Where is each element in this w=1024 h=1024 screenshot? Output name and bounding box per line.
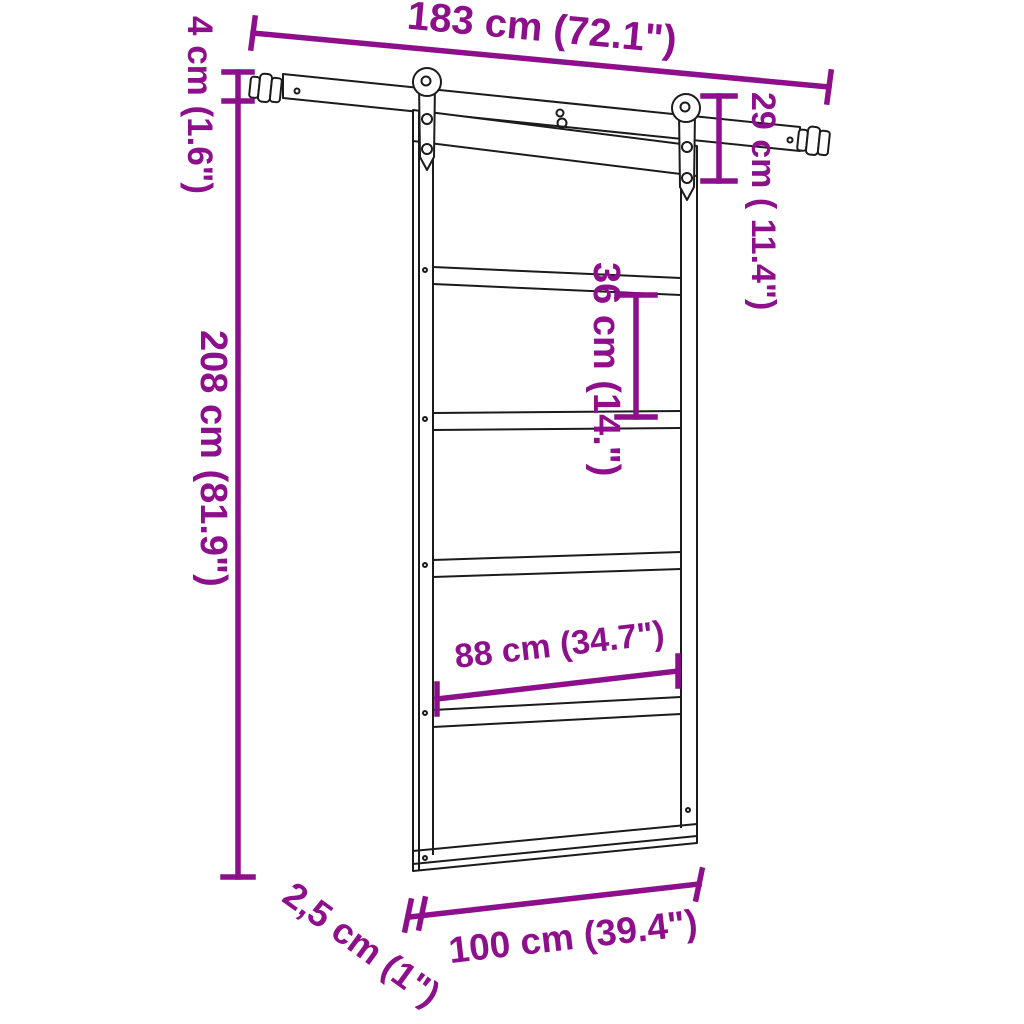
right-end-stop (797, 125, 831, 156)
hanger-bolt-icon (682, 142, 692, 152)
dim-label-door-height: 208 cm (81.9") (194, 330, 232, 587)
dim-label-panel-height: 36 cm (14.") (587, 262, 625, 476)
hanger-bolt-icon (422, 144, 432, 154)
barn-door (413, 110, 697, 871)
hanger-bolt-icon (422, 114, 432, 124)
rail-screw-icon (295, 89, 300, 94)
door-line-art (0, 0, 1024, 1024)
hanger-bolt-icon (682, 173, 692, 183)
rail-screw-icon (788, 138, 793, 143)
product-dimension-diagram: 183 cm (72.1") 4 cm (1.6") 208 cm (81.9"… (0, 0, 1024, 1024)
dim-label-hanger-drop: 29 cm ( 11.4") (746, 92, 780, 310)
dim-line-stopper-height (224, 72, 252, 101)
dim-label-stopper-height: 4 cm (1.6") (182, 16, 217, 194)
